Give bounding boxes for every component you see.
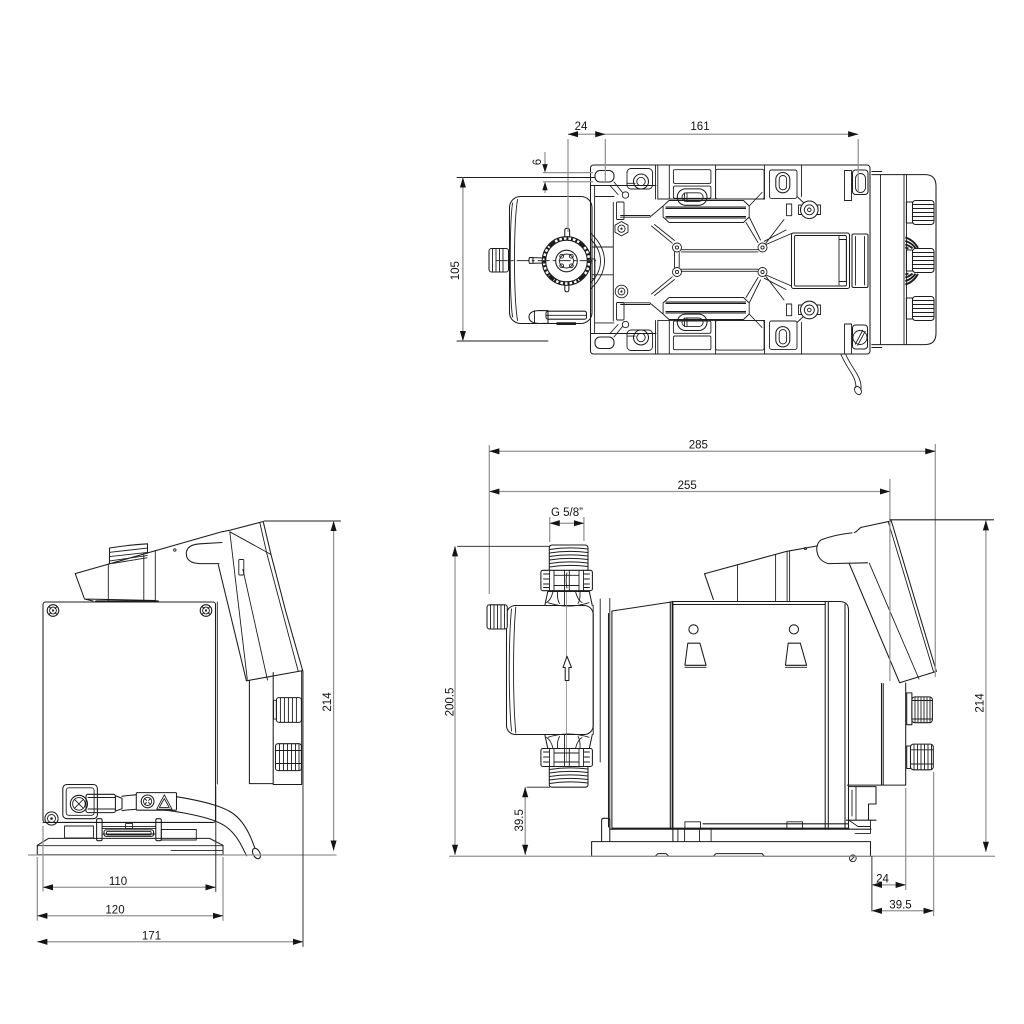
svg-text:39.5: 39.5 <box>889 899 911 911</box>
svg-text:24: 24 <box>876 873 889 885</box>
svg-text:110: 110 <box>109 876 127 888</box>
svg-text:105: 105 <box>450 261 462 280</box>
svg-text:39.5: 39.5 <box>514 809 526 831</box>
svg-text:120: 120 <box>105 904 124 916</box>
svg-text:214: 214 <box>974 693 986 713</box>
svg-text:200.5: 200.5 <box>444 688 456 717</box>
svg-text:G 5/8”: G 5/8” <box>551 507 583 519</box>
svg-text:285: 285 <box>689 440 708 452</box>
svg-text:24: 24 <box>575 121 588 133</box>
svg-text:171: 171 <box>142 930 161 942</box>
svg-text:214: 214 <box>322 692 334 712</box>
svg-text:161: 161 <box>690 121 709 133</box>
svg-text:255: 255 <box>678 480 697 492</box>
svg-text:6: 6 <box>532 159 544 165</box>
